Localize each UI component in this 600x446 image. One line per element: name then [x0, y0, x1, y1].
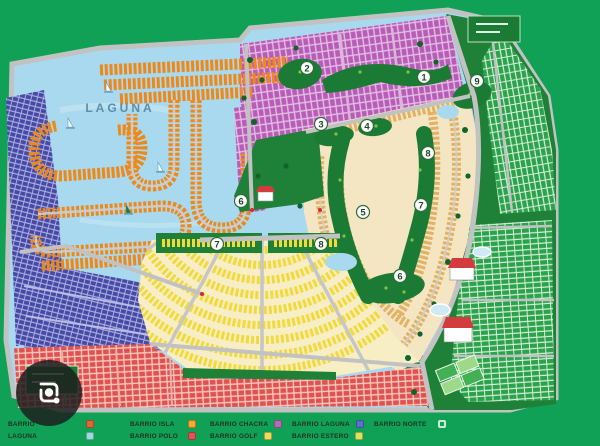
legend-label: BARRIO	[8, 421, 35, 428]
legend-swatch	[188, 420, 196, 428]
north-sign	[468, 16, 520, 42]
legend-swatch	[86, 432, 94, 440]
svg-text:2: 2	[304, 63, 309, 74]
legend-item-barrio-norte: BARRIO NORTE	[374, 419, 446, 429]
section-marker: 7	[211, 238, 224, 251]
legend-label: BARRIO GOLF	[210, 433, 258, 440]
legend-label: BARRIO CHACRA	[210, 421, 268, 428]
legend-swatch	[355, 432, 363, 440]
legend-item-laguna: LAGUNA	[8, 431, 94, 441]
laguna-label: LAGUNA	[85, 101, 154, 115]
legend-swatch	[356, 420, 364, 428]
legend-swatch	[188, 432, 196, 440]
svg-text:7: 7	[418, 200, 423, 211]
hole-marker: 4	[361, 120, 374, 133]
legend-swatch	[274, 420, 282, 428]
hole-marker: 7	[415, 199, 428, 212]
legend-label: LAGUNA	[8, 433, 37, 440]
svg-text:6: 6	[238, 196, 243, 207]
hole-marker: 6	[394, 270, 407, 283]
legend-label: BARRIO POLO	[130, 433, 178, 440]
section-marker: 6	[235, 195, 248, 208]
svg-text:8: 8	[425, 148, 430, 159]
hole-marker: 1	[418, 71, 431, 84]
golf-pond	[325, 253, 357, 271]
legend-label: BARRIO ESTERO	[292, 433, 349, 440]
svg-text:1: 1	[421, 72, 427, 83]
hole-marker: 2	[301, 62, 314, 75]
section-marker: 8	[315, 238, 328, 251]
hole-marker: 5	[357, 206, 370, 219]
legend-item-barrio-golf: BARRIO GOLF	[210, 431, 272, 441]
svg-text:8: 8	[318, 239, 323, 250]
legend-item-barrio-chacra: BARRIO CHACRA	[210, 419, 272, 429]
svg-text:4: 4	[364, 121, 370, 132]
legend-swatch	[264, 432, 272, 440]
hole-marker: 3	[315, 118, 328, 131]
legend-swatch	[438, 420, 446, 428]
svg-text:9: 9	[474, 76, 479, 87]
hole-marker: 8	[422, 147, 435, 160]
hole-marker: 9	[471, 75, 484, 88]
legend-swatch	[86, 420, 94, 428]
legend-item-barrio-polo: BARRIO POLO	[130, 431, 196, 441]
legend-item-barrio-estero: BARRIO ESTERO	[292, 431, 358, 441]
legend-label: BARRIO ISLA	[130, 421, 174, 428]
camera-icon	[32, 376, 66, 410]
legend-item-barrio-laguna: BARRIO LAGUNA	[292, 419, 358, 429]
lens-camera-button[interactable]	[16, 360, 82, 426]
svg-text:3: 3	[318, 119, 323, 130]
legend-label: BARRIO NORTE	[374, 421, 427, 428]
svg-text:7: 7	[214, 239, 219, 250]
svg-text:5: 5	[360, 207, 366, 218]
legend-item-barrio-isla: BARRIO ISLA	[130, 419, 196, 429]
golf-pond	[437, 105, 459, 119]
svg-text:6: 6	[397, 271, 402, 282]
map-image[interactable]: LAGUNA 2 1 9 3 4 8 5 7 6 6 7 8	[0, 0, 600, 441]
legend-label: BARRIO LAGUNA	[292, 421, 350, 428]
